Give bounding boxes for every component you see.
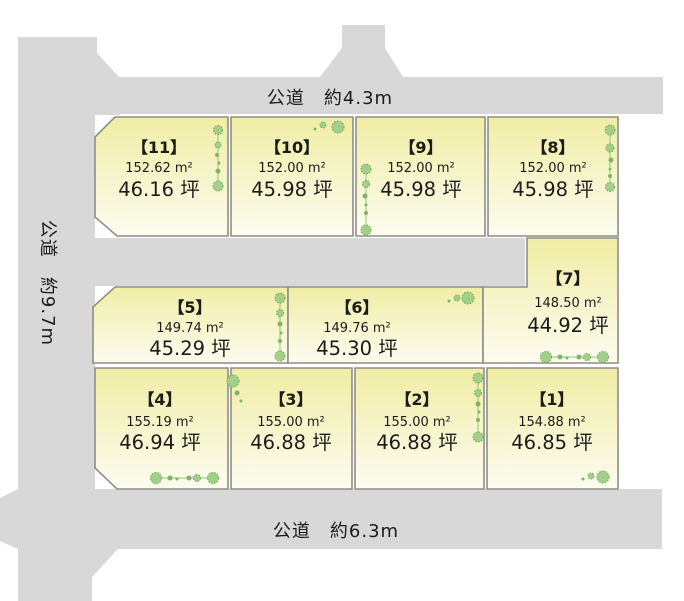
tree-icon: [235, 391, 240, 396]
tree-icon: [214, 126, 223, 135]
tree-icon: [597, 471, 609, 483]
tree-icon: [278, 322, 283, 327]
tree-icon: [448, 300, 451, 303]
plot-8: 【8】 152.00 m² 45.98 坪: [488, 117, 618, 236]
tree-icon: [582, 478, 585, 481]
tree-icon: [194, 475, 201, 482]
tree-icon: [280, 332, 283, 335]
tree-icon: [314, 128, 317, 131]
tree-icon: [275, 351, 285, 361]
plot-area-tsubo: 46.85 坪: [511, 431, 593, 454]
plot-9-shape: [356, 117, 485, 236]
plot-area-tsubo: 46.88 坪: [376, 431, 458, 454]
tree-icon: [168, 476, 173, 481]
tree-icon: [320, 122, 326, 128]
plot-area-tsubo: 46.94 坪: [119, 431, 201, 454]
tree-icon: [278, 339, 282, 343]
plot-area-sqm: 154.88 m²: [518, 415, 586, 430]
tree-icon: [218, 162, 221, 165]
plot-number: 【6】: [335, 298, 378, 317]
tree-icon: [240, 400, 243, 403]
tree-icon: [473, 432, 483, 442]
tree-icon: [609, 158, 614, 163]
road-bottom-left-wedge: [0, 489, 18, 549]
site-plan-diagram: 公道 約4.3m 公道 約9.7m 公道 約6.3m 【11】 152.62 m…: [0, 0, 684, 601]
road-left-label: 公道 約9.7m: [37, 220, 58, 346]
site-plan-canvas: 公道 約4.3m 公道 約9.7m 公道 約6.3m 【11】 152.62 m…: [0, 0, 684, 601]
tree-icon: [609, 168, 612, 171]
tree-icon: [176, 478, 179, 481]
plot-area-tsubo: 45.29 坪: [149, 337, 231, 360]
tree-icon: [577, 355, 582, 360]
tree-icon: [151, 473, 162, 484]
plot-area-sqm: 155.19 m²: [126, 415, 194, 430]
plot-6: 【6】 149.76 m² 45.30 坪: [288, 287, 483, 363]
tree-icon: [606, 183, 615, 192]
plot-number: 【1】: [530, 390, 573, 409]
tree-icon: [332, 121, 344, 133]
plot-8-shape: [488, 117, 618, 236]
tree-icon: [475, 390, 482, 397]
plot-area-sqm: 155.00 m²: [383, 415, 451, 430]
plot-4: 【4】 155.19 m² 46.94 坪: [95, 368, 228, 489]
plot-10: 【10】 152.00 m² 45.98 坪: [231, 117, 353, 236]
tree-icon: [605, 125, 615, 135]
plot-area-tsubo: 46.88 坪: [250, 431, 332, 454]
plot-number: 【4】: [138, 390, 181, 409]
tree-icon: [227, 375, 239, 387]
tree-icon: [584, 354, 591, 361]
road-bottom-stub: [18, 549, 118, 601]
plot-area-sqm: 152.00 m²: [519, 161, 587, 176]
plot-area-sqm: 152.62 m²: [125, 161, 193, 176]
tree-icon: [364, 211, 368, 215]
road-interrow-strip: [95, 238, 525, 286]
tree-icon: [215, 153, 219, 157]
plot-area-tsubo: 44.92 坪: [527, 314, 609, 337]
plot-area-sqm: 148.50 m²: [534, 296, 602, 311]
plot-number: 【10】: [265, 138, 319, 157]
plot-area-sqm: 152.00 m²: [387, 161, 455, 176]
tree-icon: [473, 373, 483, 383]
tree-icon: [478, 411, 481, 414]
tree-icon: [215, 142, 221, 148]
tree-icon: [588, 473, 594, 479]
plot-3: 【3】 155.00 m² 46.88 坪: [231, 368, 352, 489]
plot-number: 【5】: [168, 298, 211, 317]
plot-number: 【8】: [531, 138, 574, 157]
plot-11-shape: [95, 117, 228, 236]
plot-5: 【5】 149.74 m² 45.29 坪: [93, 287, 288, 363]
tree-icon: [361, 225, 371, 235]
plot-number: 【3】: [269, 390, 312, 409]
plot-area-tsubo: 46.16 坪: [118, 178, 200, 201]
plot-number: 【9】: [399, 138, 442, 157]
tree-icon: [187, 476, 192, 481]
plot-area-tsubo: 45.30 坪: [316, 337, 398, 360]
tree-icon: [454, 295, 460, 301]
plots: 【11】 152.62 m² 46.16 坪 【10】 152.00 m² 45…: [93, 117, 618, 489]
plot-number: 【7】: [546, 269, 589, 288]
plot-1: 【1】 154.88 m² 46.85 坪: [487, 368, 618, 489]
tree-icon: [476, 402, 481, 407]
tree-icon: [606, 144, 614, 152]
plot-area-tsubo: 45.98 坪: [380, 178, 462, 201]
tree-icon: [208, 473, 219, 484]
tree-icon: [363, 194, 368, 199]
plot-area-sqm: 149.76 m²: [323, 321, 391, 336]
tree-icon: [558, 355, 563, 360]
plot-11: 【11】 152.62 m² 46.16 坪: [95, 117, 228, 236]
plot-9: 【9】 152.00 m² 45.98 坪: [356, 117, 485, 236]
tree-icon: [216, 169, 221, 174]
tree-icon: [566, 357, 569, 360]
plot-area-sqm: 152.00 m²: [258, 161, 326, 176]
tree-icon: [277, 310, 284, 317]
road-top-label: 公道 約4.3m: [267, 88, 393, 109]
plot-area-tsubo: 45.98 坪: [512, 178, 594, 201]
road-bottom-label: 公道 約6.3m: [273, 521, 399, 542]
plot-10-shape: [231, 117, 353, 236]
plot-area-sqm: 155.00 m²: [257, 415, 325, 430]
tree-icon: [275, 293, 285, 303]
tree-icon: [598, 352, 609, 363]
tree-icon: [363, 181, 370, 188]
tree-icon: [608, 174, 612, 178]
plot-2: 【2】 155.00 m² 46.88 坪: [355, 368, 484, 489]
plot-area-sqm: 149.74 m²: [156, 321, 224, 336]
tree-icon: [541, 352, 552, 363]
tree-icon: [365, 204, 368, 207]
tree-icon: [361, 164, 371, 174]
road-top-stub: [320, 25, 403, 77]
plot-number: 【2】: [395, 390, 438, 409]
tree-icon: [462, 292, 474, 304]
plot-number: 【11】: [132, 138, 186, 157]
plot-area-tsubo: 45.98 坪: [251, 178, 333, 201]
tree-icon: [213, 181, 223, 191]
tree-icon: [476, 418, 480, 422]
